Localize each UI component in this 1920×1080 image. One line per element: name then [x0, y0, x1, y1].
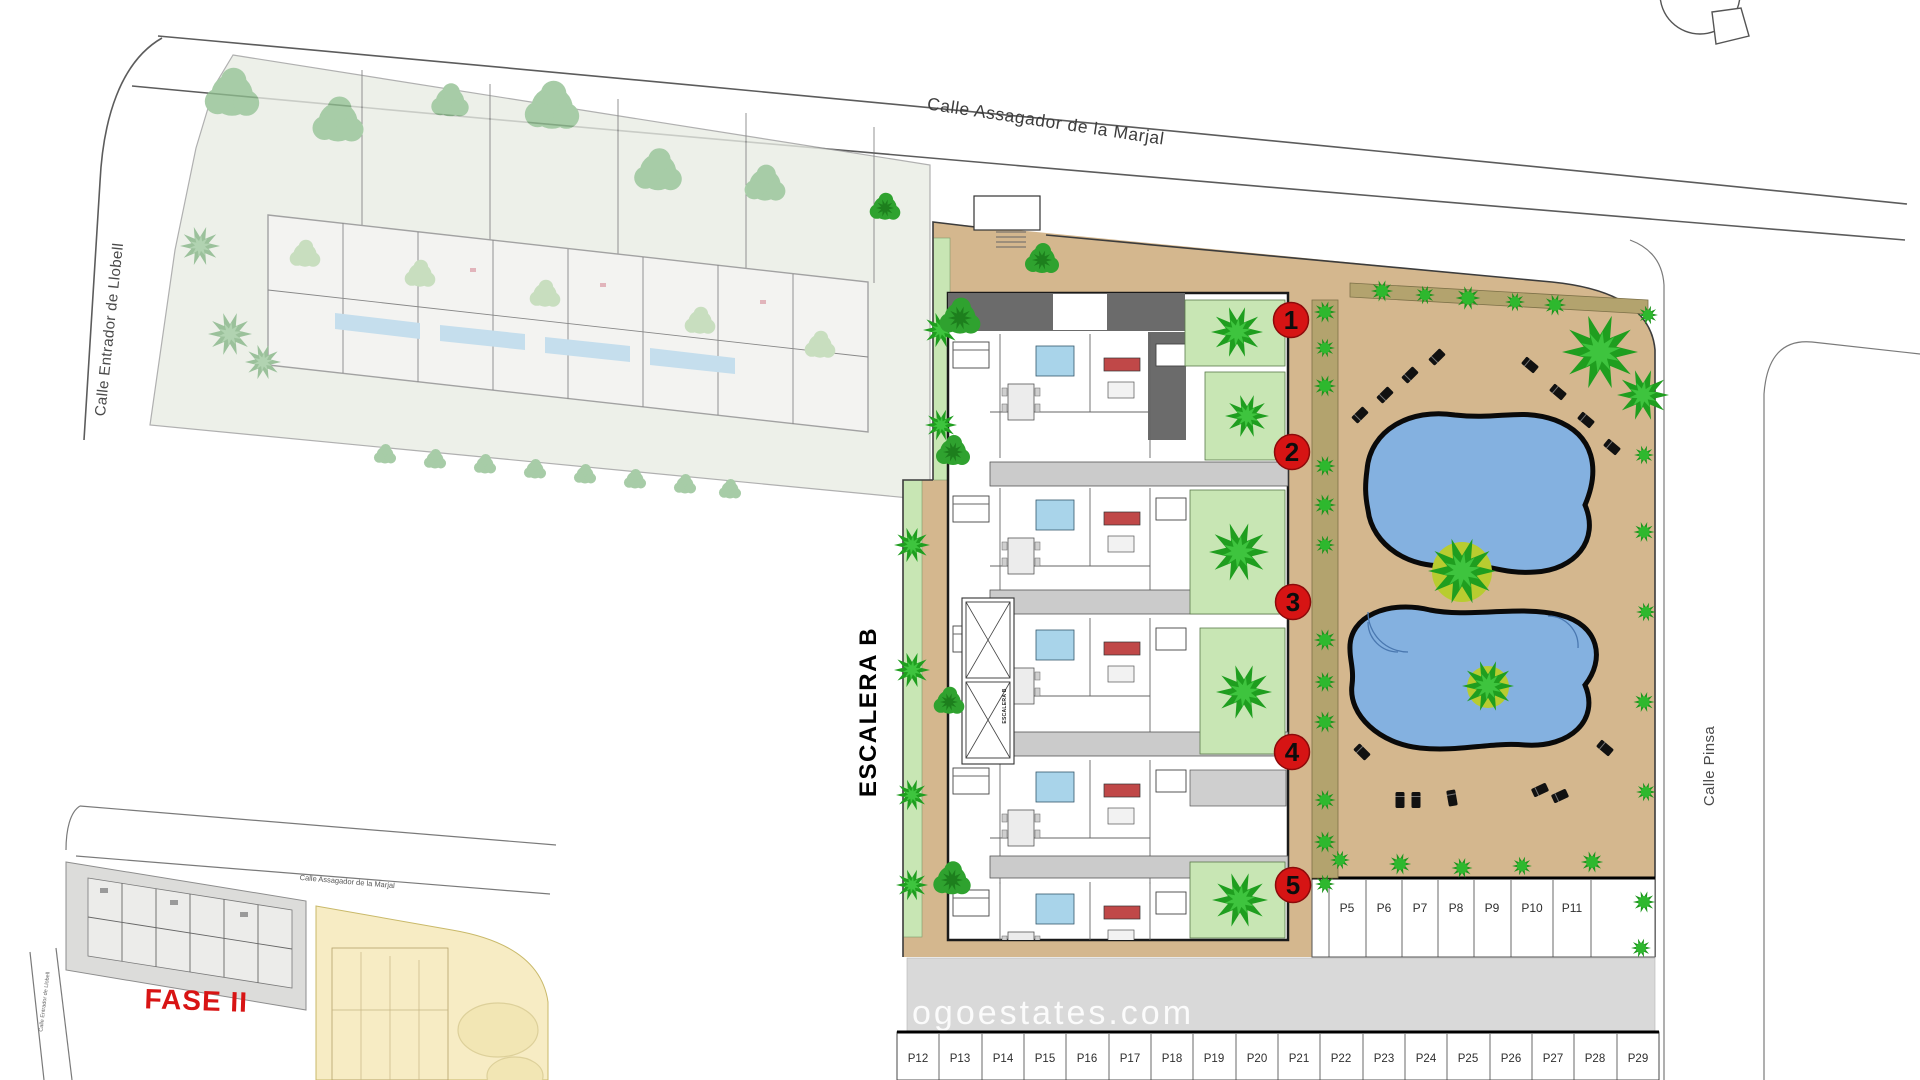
inset-key-plan: Calle Assagador de la Marjal Calle Entra… — [30, 806, 556, 1080]
phase-label: FASE II — [144, 983, 248, 1018]
inset-street-label-left: Calle Entrador de Llobell — [38, 972, 51, 1033]
parking-stall-label: P12 — [908, 1053, 928, 1065]
parking-stall-label: P11 — [1562, 901, 1583, 915]
parking-stall-label: P28 — [1585, 1053, 1605, 1065]
svg-text:5: 5 — [1286, 870, 1300, 900]
parking-stall-label: P8 — [1449, 901, 1464, 915]
street-label-right: Calle Pinsa — [1701, 726, 1718, 807]
parking-row-upper: P5 P6 P7 P8 P9 P10 P11 — [1312, 878, 1655, 957]
inset-phase1-highlight — [316, 906, 548, 1080]
unit-marker-3: 3 — [1276, 585, 1311, 620]
parking-stall-label: P9 — [1485, 901, 1500, 915]
watermark: ogoestates.com — [912, 994, 1194, 1032]
parking-stall-label: P22 — [1331, 1053, 1351, 1065]
parking-stall-label: P6 — [1377, 901, 1392, 915]
site-plan: Calle Assagador de la Marjal Calle Entra… — [0, 0, 1920, 1080]
parking-stall-label: P18 — [1162, 1053, 1182, 1065]
parking-stall-label: P16 — [1077, 1053, 1097, 1065]
unit-marker-5: 5 — [1276, 868, 1311, 903]
parking-stall-label: P20 — [1247, 1053, 1267, 1065]
phase2-parcel — [150, 55, 930, 500]
unit-marker-1: 1 — [1274, 303, 1309, 338]
svg-text:4: 4 — [1285, 737, 1300, 767]
parking-stall-label: P25 — [1458, 1053, 1478, 1065]
roundabout-symbol — [1660, 0, 1749, 44]
parking-stall-label: P17 — [1120, 1053, 1140, 1065]
parking-stall-label: P21 — [1289, 1053, 1309, 1065]
unit-marker-4: 4 — [1275, 735, 1310, 770]
parking-stall-label: P23 — [1374, 1053, 1394, 1065]
street-right-west-fillet — [1630, 240, 1664, 285]
parking-stall-label: P19 — [1204, 1053, 1224, 1065]
parking-stall-label: P24 — [1416, 1053, 1437, 1065]
unit-marker-2: 2 — [1275, 435, 1310, 470]
svg-text:3: 3 — [1286, 587, 1300, 617]
parking-stall-label: P27 — [1543, 1053, 1563, 1065]
parking-stall-label: P13 — [950, 1053, 970, 1065]
street-label-top: Calle Assagador de la Marjal — [926, 93, 1166, 148]
parking-stall-label: P29 — [1628, 1053, 1648, 1065]
street-right-east-curb — [1764, 342, 1920, 1080]
parking-stall-label: P15 — [1035, 1053, 1055, 1065]
parking-stall-label: P5 — [1340, 901, 1355, 915]
stair-core-label: ESCALERA B — [1002, 688, 1008, 723]
parking-row-lower: P12 P13 P14 P15 P16 P17 P18 P19 P20 P21 … — [897, 1032, 1659, 1080]
inset-street-label-top: Calle Assagador de la Marjal — [299, 873, 395, 890]
svg-text:2: 2 — [1285, 437, 1299, 467]
parking-stall-label: P14 — [993, 1053, 1014, 1065]
parking-stall-label: P26 — [1501, 1053, 1521, 1065]
street-label-left: Calle Entrador de Llobell — [92, 242, 127, 417]
stair-core: ESCALERA B — [962, 598, 1014, 764]
site-plan-drawing: Calle Assagador de la Marjal Calle Entra… — [0, 0, 1920, 1080]
building-label: ESCALERA B — [855, 627, 882, 797]
main-parcel: ogoestates.com P12 P13 P14 — [855, 193, 1669, 1080]
svg-text:1: 1 — [1284, 305, 1298, 335]
parking-stall-label: P10 — [1521, 901, 1543, 915]
parking-stall-label: P7 — [1413, 901, 1428, 915]
